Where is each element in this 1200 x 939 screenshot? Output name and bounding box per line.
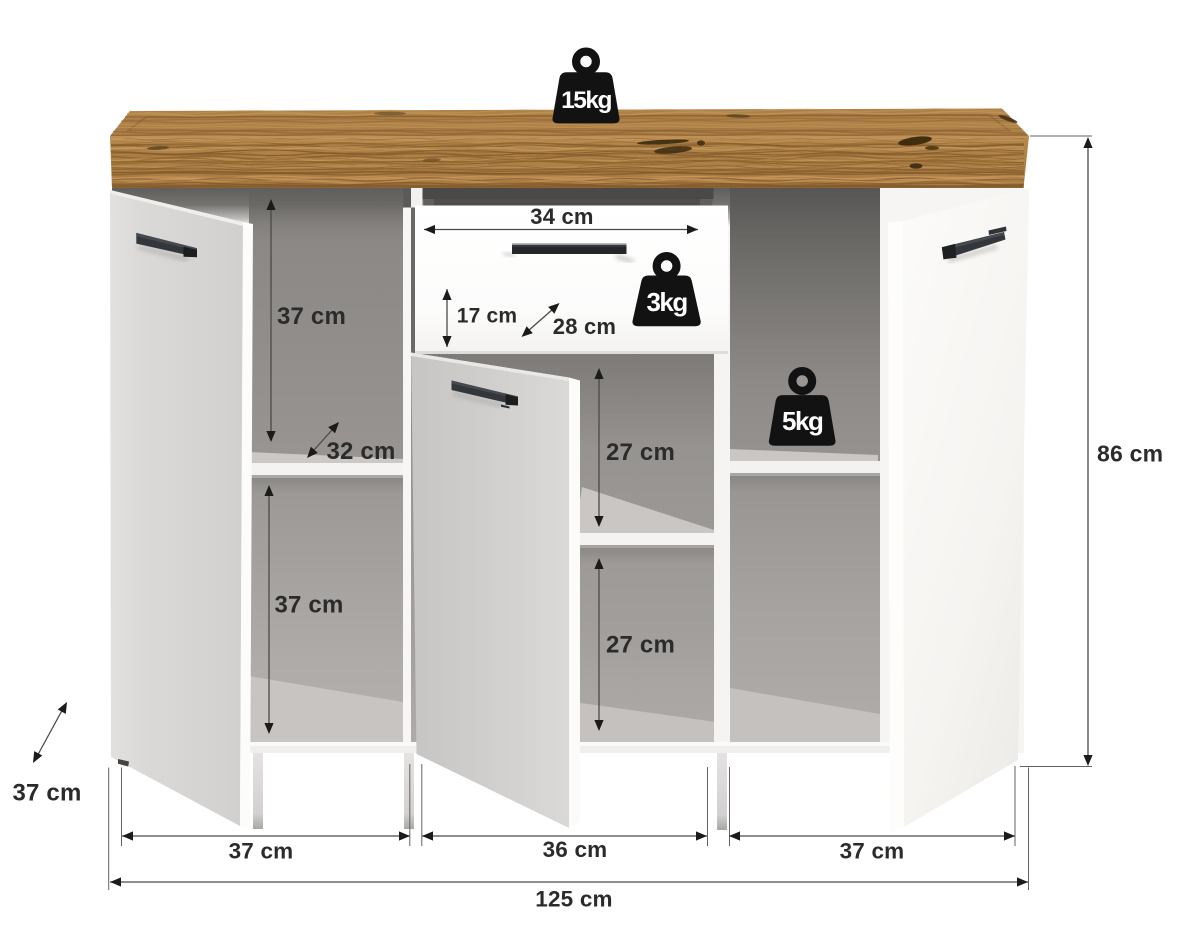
svg-text:37 cm: 37 cm <box>229 839 294 864</box>
svg-text:32 cm: 32 cm <box>326 438 395 465</box>
svg-text:34 cm: 34 cm <box>530 204 593 229</box>
svg-text:27 cm: 27 cm <box>606 439 675 466</box>
svg-text:37 cm: 37 cm <box>277 303 346 330</box>
svg-text:36 cm: 36 cm <box>543 837 608 862</box>
svg-text:86 cm: 86 cm <box>1097 440 1163 466</box>
svg-text:125 cm: 125 cm <box>535 887 613 912</box>
svg-text:27 cm: 27 cm <box>606 632 675 659</box>
svg-text:5kg: 5kg <box>782 406 823 436</box>
svg-text:15kg: 15kg <box>561 87 611 114</box>
svg-text:37 cm: 37 cm <box>840 839 905 864</box>
svg-text:17 cm: 17 cm <box>457 305 518 328</box>
svg-text:3kg: 3kg <box>646 287 687 317</box>
svg-text:37 cm: 37 cm <box>12 780 81 807</box>
svg-text:28 cm: 28 cm <box>553 314 616 339</box>
svg-text:37 cm: 37 cm <box>274 592 343 619</box>
